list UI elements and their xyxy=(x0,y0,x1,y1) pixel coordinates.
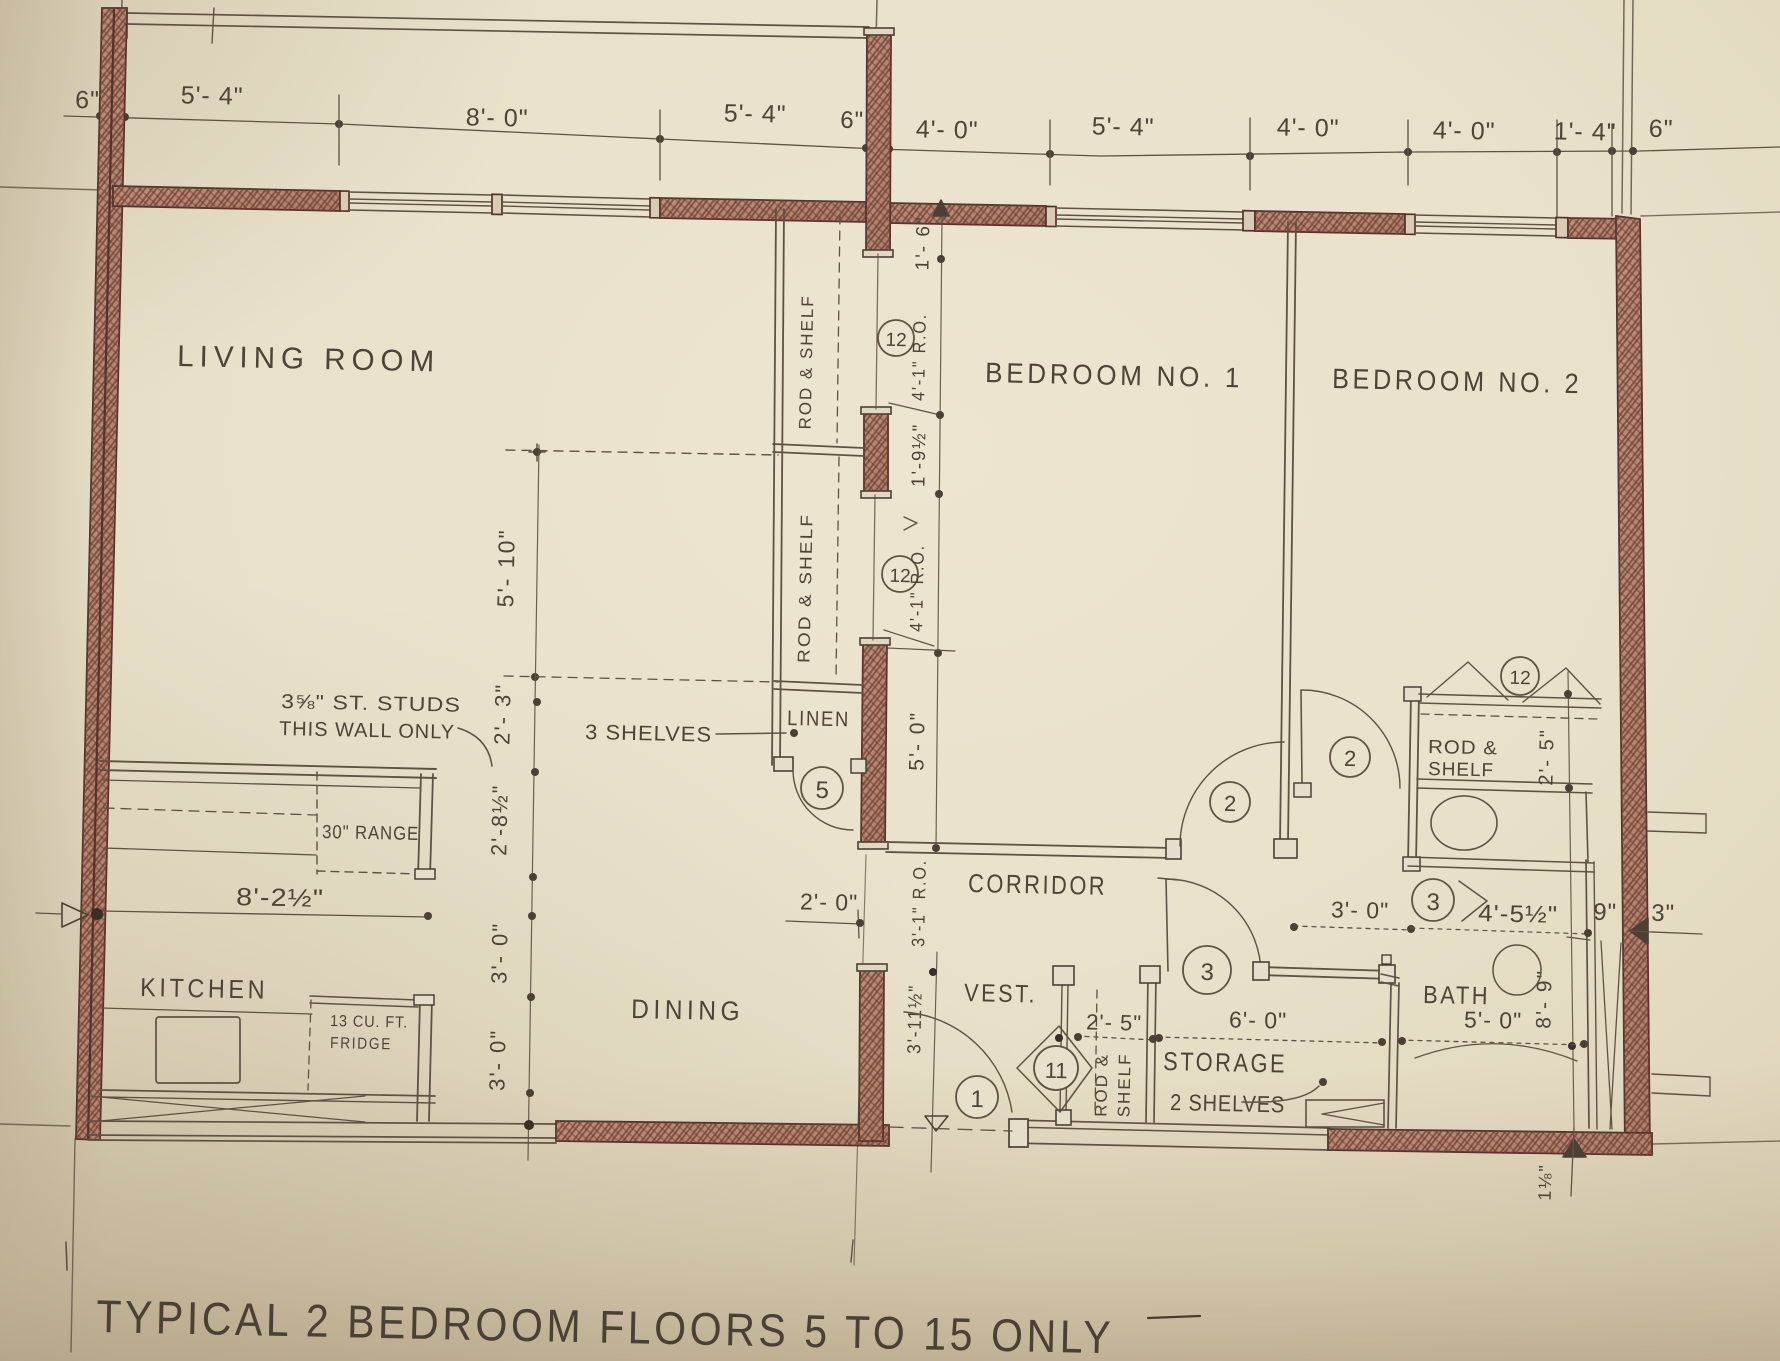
svg-text:ROD &: ROD & xyxy=(1091,1053,1111,1117)
svg-text:2 SHELVES: 2 SHELVES xyxy=(1170,1089,1286,1117)
svg-text:VEST.: VEST. xyxy=(964,979,1038,1009)
svg-text:THIS WALL ONLY: THIS WALL ONLY xyxy=(279,718,455,744)
svg-text:3": 3" xyxy=(1651,900,1675,927)
svg-text:ROD &: ROD & xyxy=(1428,737,1498,759)
svg-text:BEDROOM NO. 2: BEDROOM NO. 2 xyxy=(1332,363,1583,399)
svg-text:1'- 6": 1'- 6" xyxy=(912,215,934,271)
svg-text:2'-8½": 2'-8½" xyxy=(486,784,513,857)
svg-text:4'-1" R.O.: 4'-1" R.O. xyxy=(908,313,930,401)
svg-text:SHELF: SHELF xyxy=(1428,759,1494,781)
svg-text:30" RANGE: 30" RANGE xyxy=(322,822,419,845)
svg-text:6": 6" xyxy=(1648,115,1673,144)
svg-text:2'- 5": 2'- 5" xyxy=(1086,1009,1142,1035)
svg-text:5: 5 xyxy=(815,777,829,804)
svg-text:13 CU. FT.: 13 CU. FT. xyxy=(330,1013,408,1032)
svg-text:LINEN: LINEN xyxy=(787,707,850,731)
svg-text:BEDROOM NO. 1: BEDROOM NO. 1 xyxy=(985,357,1244,393)
svg-text:5'- 4": 5'- 4" xyxy=(724,99,787,128)
svg-text:3'- 0": 3'- 0" xyxy=(486,922,512,984)
svg-text:3: 3 xyxy=(1200,959,1214,986)
svg-text:2: 2 xyxy=(1224,791,1237,816)
svg-text:6": 6" xyxy=(840,107,864,134)
svg-text:12: 12 xyxy=(1509,668,1531,689)
svg-text:LIVING ROOM: LIVING ROOM xyxy=(177,340,441,379)
svg-text:ROD & SHELF: ROD & SHELF xyxy=(796,294,818,429)
svg-text:FRIDGE: FRIDGE xyxy=(330,1035,392,1053)
svg-text:CORRIDOR: CORRIDOR xyxy=(968,868,1108,901)
svg-text:3'- 0": 3'- 0" xyxy=(484,1029,510,1091)
svg-text:8'- 0": 8'- 0" xyxy=(466,103,529,132)
svg-text:4'- 0": 4'- 0" xyxy=(1277,113,1340,142)
svg-text:5'- 4": 5'- 4" xyxy=(1092,112,1155,141)
svg-text:3'-11½": 3'-11½" xyxy=(904,984,926,1054)
svg-text:ROD & SHELF: ROD & SHELF xyxy=(794,513,816,663)
svg-text:5'- 0": 5'- 0" xyxy=(1464,1006,1523,1033)
svg-text:3'- 0": 3'- 0" xyxy=(1331,896,1390,923)
svg-text:2'- 5": 2'- 5" xyxy=(1535,728,1558,786)
svg-text:5'- 0": 5'- 0" xyxy=(905,711,929,771)
svg-text:8'-2½": 8'-2½" xyxy=(236,883,325,913)
svg-text:4'-5½": 4'-5½" xyxy=(1478,900,1559,929)
svg-text:5'- 4": 5'- 4" xyxy=(181,81,244,110)
svg-text:9": 9" xyxy=(1593,899,1617,926)
svg-text:SHELF: SHELF xyxy=(1114,1052,1134,1117)
svg-text:1'-9½": 1'-9½" xyxy=(908,423,930,487)
svg-text:DINING: DINING xyxy=(631,994,745,1026)
svg-text:3: 3 xyxy=(1426,889,1440,916)
svg-text:3'-1" R.O.: 3'-1" R.O. xyxy=(908,859,930,947)
svg-text:1'- 4": 1'- 4" xyxy=(1554,117,1617,146)
svg-text:2'- 0": 2'- 0" xyxy=(800,888,859,915)
svg-text:3 SHELVES: 3 SHELVES xyxy=(585,721,712,747)
svg-text:STORAGE: STORAGE xyxy=(1163,1046,1288,1079)
svg-text:12: 12 xyxy=(885,330,907,351)
svg-text:KITCHEN: KITCHEN xyxy=(140,972,269,1005)
svg-text:4'-1" R.O.: 4'-1" R.O. xyxy=(906,544,928,632)
svg-text:11: 11 xyxy=(1044,1058,1067,1083)
svg-text:2: 2 xyxy=(1344,746,1357,771)
svg-text:4'- 0": 4'- 0" xyxy=(916,115,979,144)
svg-text:1⅛": 1⅛" xyxy=(1535,1163,1556,1201)
svg-text:2'- 3": 2'- 3" xyxy=(489,683,515,745)
svg-text:1: 1 xyxy=(970,1086,984,1113)
svg-text:3⅝" ST. STUDS: 3⅝" ST. STUDS xyxy=(281,691,461,717)
svg-text:5'- 10": 5'- 10" xyxy=(492,528,520,608)
svg-text:6": 6" xyxy=(75,86,100,115)
svg-text:6'- 0": 6'- 0" xyxy=(1229,1006,1288,1033)
svg-text:4'- 0": 4'- 0" xyxy=(1433,116,1496,145)
svg-text:8'- 9": 8'- 9" xyxy=(1532,969,1556,1029)
